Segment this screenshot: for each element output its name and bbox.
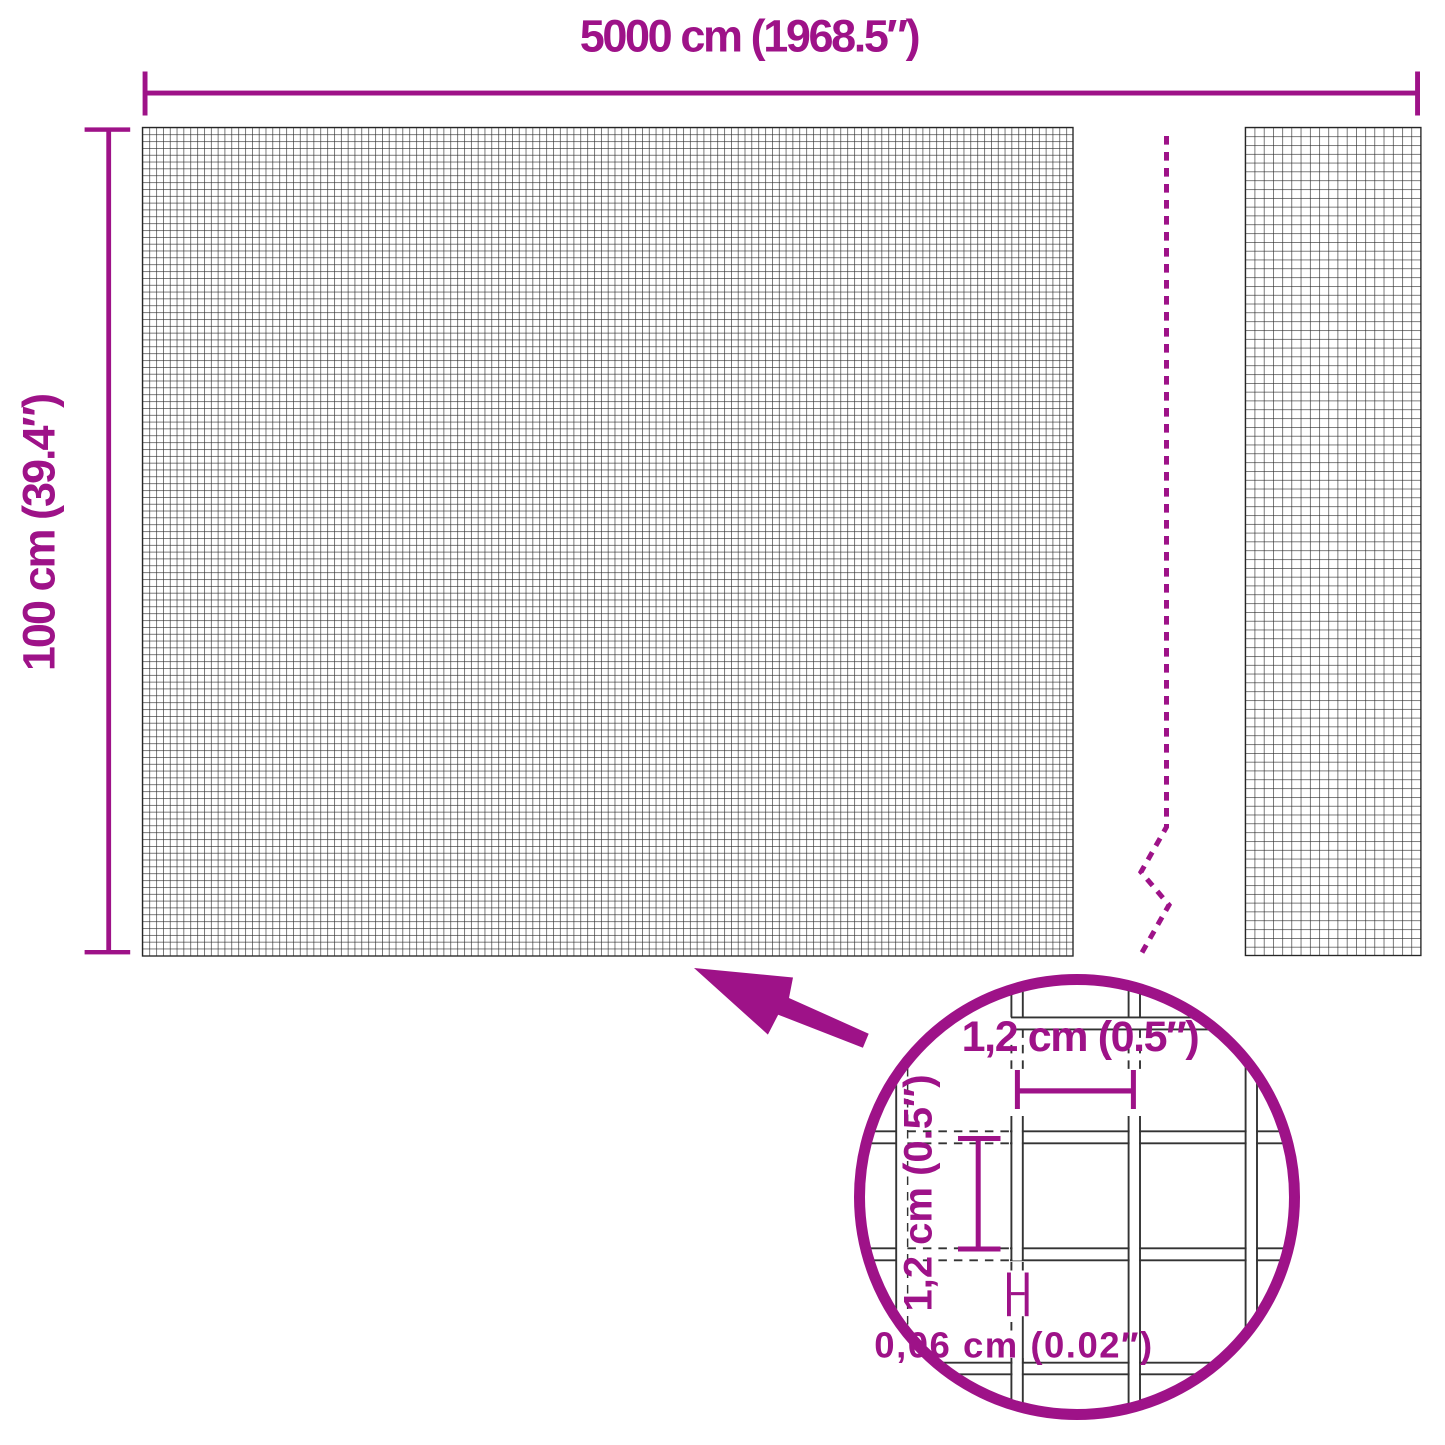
svg-text:5000 cm (1968.5″): 5000 cm (1968.5″) [580,11,919,62]
svg-text:0,06 cm (0.02″): 0,06 cm (0.02″) [874,1325,1153,1366]
svg-text:100 cm (39.4″): 100 cm (39.4″) [14,395,65,671]
svg-text:1,2 cm (0.5″): 1,2 cm (0.5″) [897,1074,941,1311]
svg-text:1,2 cm (0.5″): 1,2 cm (0.5″) [962,1013,1199,1061]
